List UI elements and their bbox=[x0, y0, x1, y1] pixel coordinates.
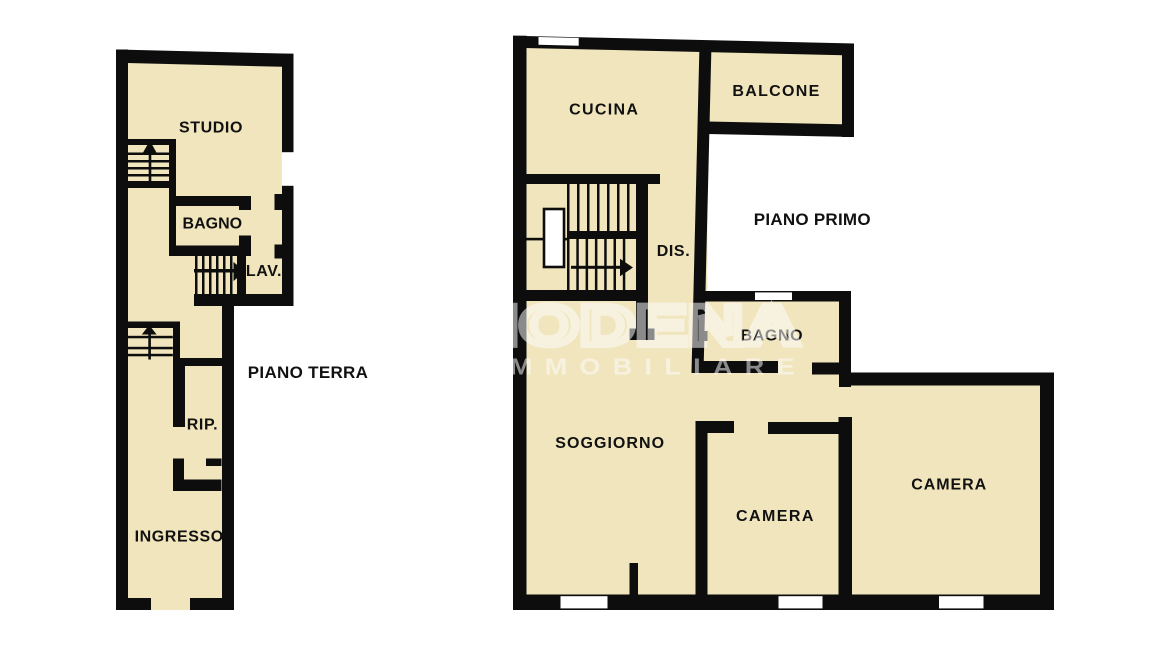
svg-text:INGRESSO: INGRESSO bbox=[135, 529, 224, 546]
svg-text:RIP.: RIP. bbox=[187, 417, 218, 434]
svg-text:PIANO TERRA: PIANO TERRA bbox=[248, 363, 368, 382]
svg-text:STUDIO: STUDIO bbox=[179, 120, 243, 137]
svg-text:MODENA: MODENA bbox=[455, 295, 801, 357]
svg-text:DIS.: DIS. bbox=[657, 243, 691, 260]
svg-text:CAMERA: CAMERA bbox=[736, 508, 815, 525]
svg-text:PIANO PRIMO: PIANO PRIMO bbox=[754, 210, 871, 229]
svg-text:SOGGIORNO: SOGGIORNO bbox=[555, 435, 665, 452]
svg-text:CAMERA: CAMERA bbox=[911, 477, 987, 494]
svg-text:CUCINA: CUCINA bbox=[569, 102, 639, 119]
svg-text:BALCONE: BALCONE bbox=[732, 83, 820, 100]
svg-text:IMMOBILIARE: IMMOBILIARE bbox=[490, 354, 807, 380]
svg-text:BAGNO: BAGNO bbox=[183, 216, 243, 233]
svg-text:LAV.: LAV. bbox=[246, 263, 282, 280]
